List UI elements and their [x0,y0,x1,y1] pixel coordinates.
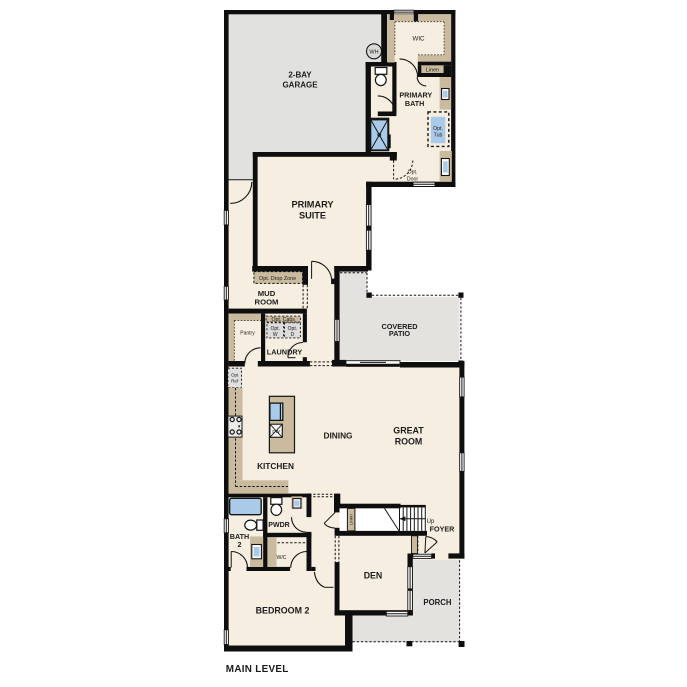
svg-text:Tub: Tub [434,133,443,139]
svg-text:LAUNDRY: LAUNDRY [267,347,303,356]
svg-text:Opt.: Opt. [288,326,297,332]
svg-text:DINING: DINING [323,430,352,440]
svg-text:Pantry: Pantry [240,331,255,337]
svg-text:Linen: Linen [426,67,439,73]
svg-text:Opt. Cabs: Opt. Cabs [272,317,296,323]
svg-text:GREAT: GREAT [393,426,424,436]
svg-text:FOYER: FOYER [430,524,456,533]
svg-text:Opt. Drop Zone: Opt. Drop Zone [259,276,296,282]
svg-text:Linen: Linen [348,514,353,525]
svg-text:WH: WH [369,49,378,55]
svg-text:2-BAY: 2-BAY [288,71,312,80]
svg-text:W: W [273,332,278,338]
svg-text:GARAGE: GARAGE [282,81,318,90]
svg-text:PORCH: PORCH [423,598,452,607]
svg-text:PRIMARY: PRIMARY [291,200,333,210]
svg-text:2: 2 [238,540,242,549]
svg-text:ROOM: ROOM [395,436,423,446]
svg-text:WIC: WIC [412,36,425,43]
svg-text:Ref: Ref [231,378,239,383]
svg-text:ROOM: ROOM [255,297,279,306]
svg-text:Opt.: Opt. [270,326,279,332]
svg-text:Door: Door [407,176,419,182]
svg-text:Opt.: Opt. [433,126,443,132]
svg-text:MAIN LEVEL: MAIN LEVEL [226,664,289,675]
svg-text:BEDROOM 2: BEDROOM 2 [256,606,310,616]
svg-text:Opt: Opt [231,372,239,377]
svg-text:Opt.: Opt. [408,170,418,176]
svg-text:KITCHEN: KITCHEN [257,461,294,471]
svg-text:W/C: W/C [276,555,286,561]
svg-text:DW: DW [272,429,280,434]
svg-text:D: D [291,332,295,338]
svg-text:BATH: BATH [405,99,424,108]
svg-text:PATIO: PATIO [389,329,411,338]
svg-text:PWDR: PWDR [268,522,289,529]
svg-text:DEN: DEN [364,570,383,580]
svg-text:SUITE: SUITE [299,210,326,220]
